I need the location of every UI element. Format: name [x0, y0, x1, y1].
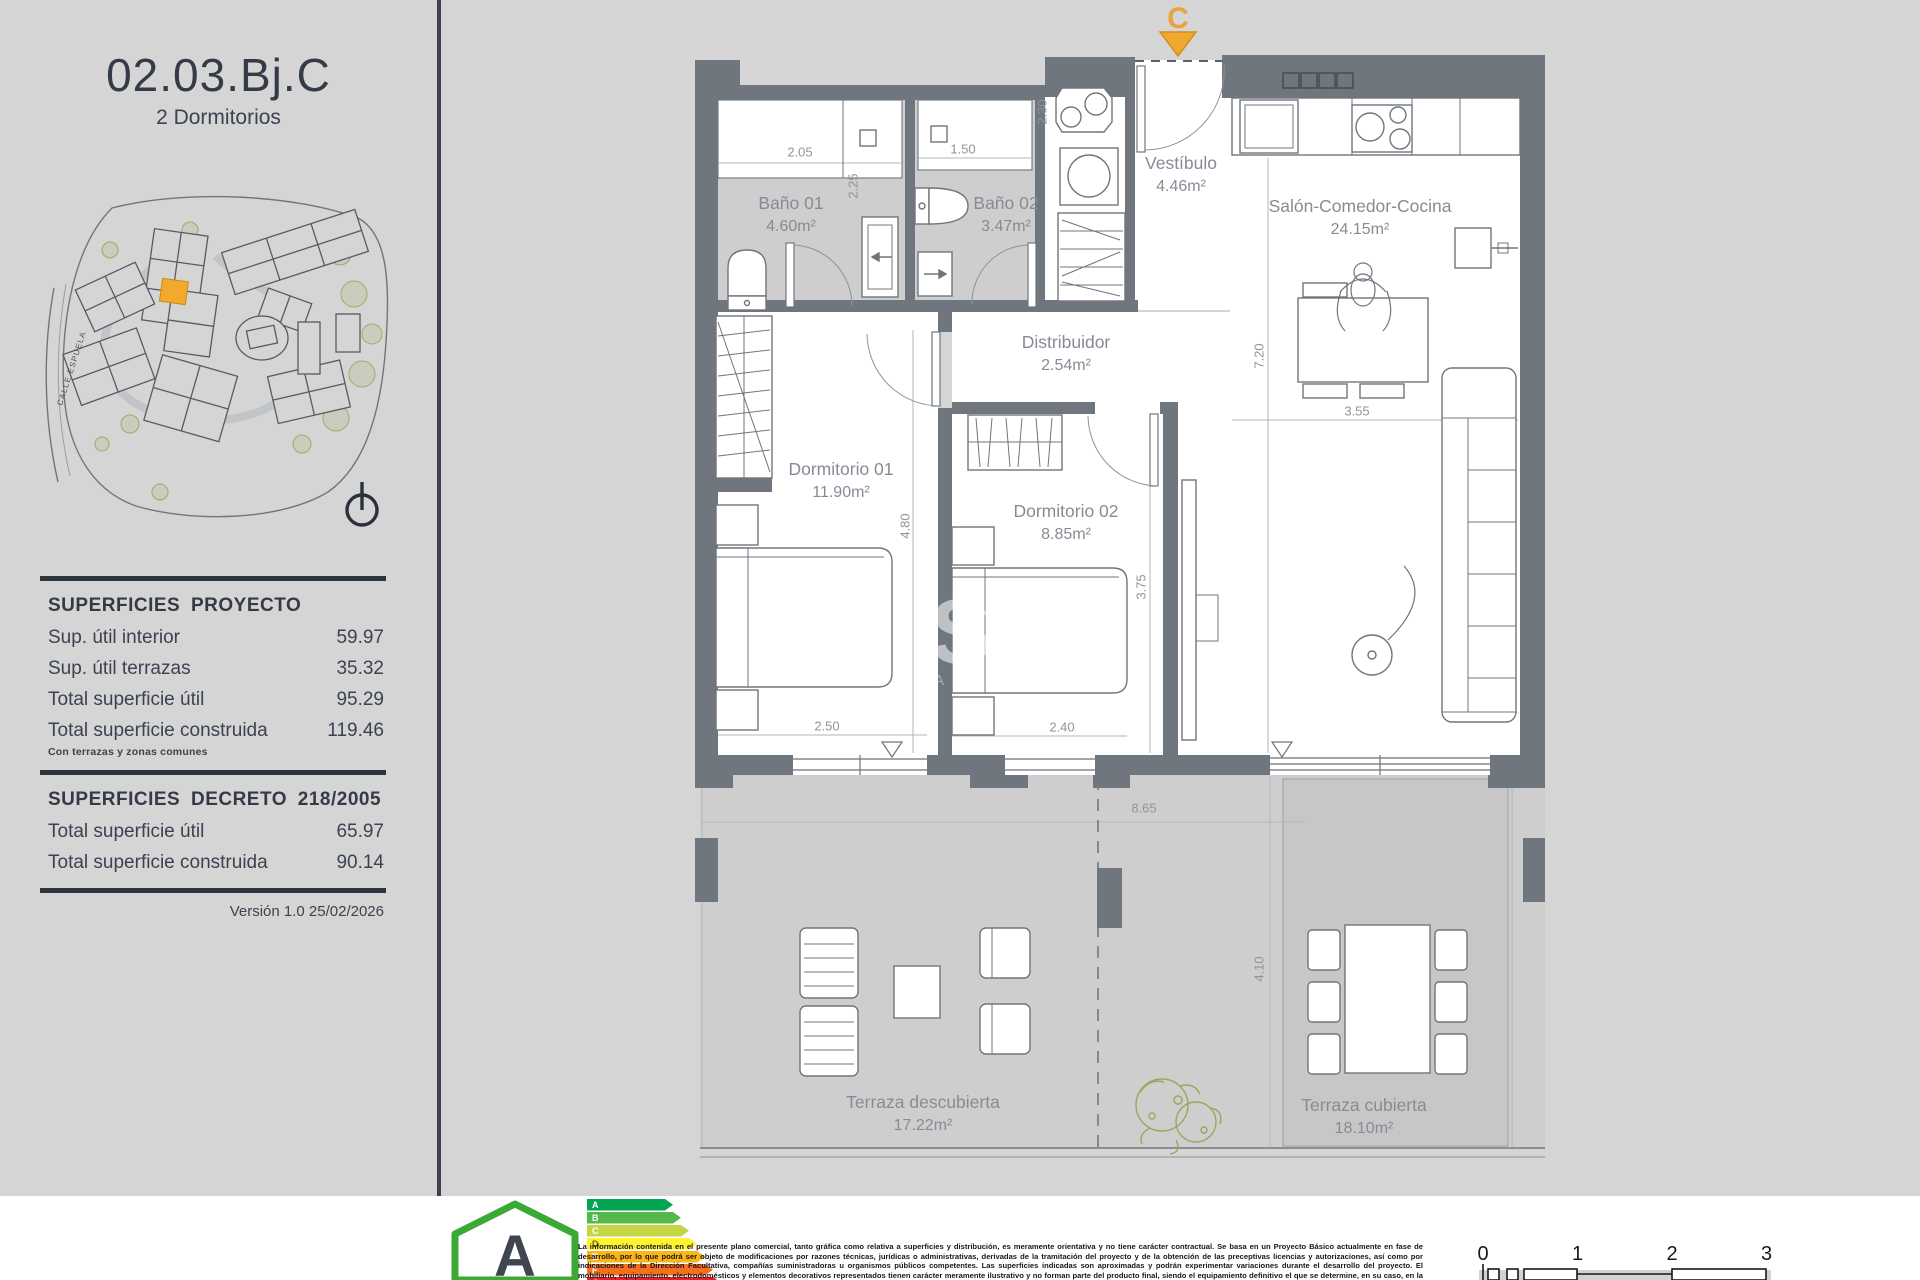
svg-text:A: A: [592, 1200, 599, 1210]
svg-text:1: 1: [1572, 1243, 1583, 1265]
dim-label: 2.25: [846, 173, 861, 198]
dim-label: 4.80: [898, 513, 913, 538]
floorplan-sheet: 02.03.Bj.C 2 Dormitorios: [0, 0, 1920, 1280]
terrace-edge: [700, 1148, 1545, 1157]
energy-house-icon: A: [455, 1204, 575, 1280]
dim-label: 2.05: [787, 145, 812, 160]
dim-label: 2.50: [814, 719, 839, 734]
room-label-terraza-descubierta: Terraza descubierta 17.22m²: [846, 1091, 1000, 1137]
dim-label: 3.55: [1344, 404, 1369, 419]
dim-label: 1.50: [950, 142, 975, 157]
dim-label: 2.30: [1035, 99, 1050, 124]
dim-label: 3.75: [1134, 574, 1149, 599]
room-label-terraza-cubierta: Terraza cubierta 18.10m²: [1301, 1094, 1426, 1140]
dim-label: 2.40: [1049, 720, 1074, 735]
svg-text:0: 0: [1477, 1243, 1488, 1265]
room-label-bano-02: Baño 02 3.47m²: [973, 192, 1038, 238]
scale-ticks: 0 1 2 3: [1477, 1243, 1772, 1265]
svg-text:2: 2: [1666, 1243, 1677, 1265]
floor-plan-drawing: [0, 0, 1920, 1280]
graphic-scale-bar: 0 1 2 3: [1455, 1230, 1795, 1280]
dim-label: 7.20: [1252, 343, 1267, 368]
room-label-dormitorio-02: Dormitorio 02 8.85m²: [1013, 500, 1118, 546]
room-label-salon: Salón-Comedor-Cocina 24.15m²: [1269, 195, 1452, 241]
svg-text:B: B: [592, 1213, 599, 1223]
room-label-distribuidor: Distribuidor 2.54m²: [1022, 331, 1111, 377]
entry-marker-label: C: [1167, 2, 1189, 36]
legal-disclaimer: La información contenida en el presente …: [578, 1242, 1423, 1280]
dim-label: 8.65: [1131, 801, 1156, 816]
room-label-bano-01: Baño 01 4.60m²: [758, 192, 823, 238]
room-label-vestibulo: Vestíbulo 4.46m²: [1145, 152, 1217, 198]
dim-label: 4.10: [1252, 956, 1267, 981]
svg-text:3: 3: [1761, 1243, 1772, 1265]
energy-rating-letter: A: [494, 1224, 536, 1280]
room-label-dormitorio-01: Dormitorio 01 11.90m²: [788, 458, 893, 504]
svg-text:C: C: [592, 1226, 599, 1236]
